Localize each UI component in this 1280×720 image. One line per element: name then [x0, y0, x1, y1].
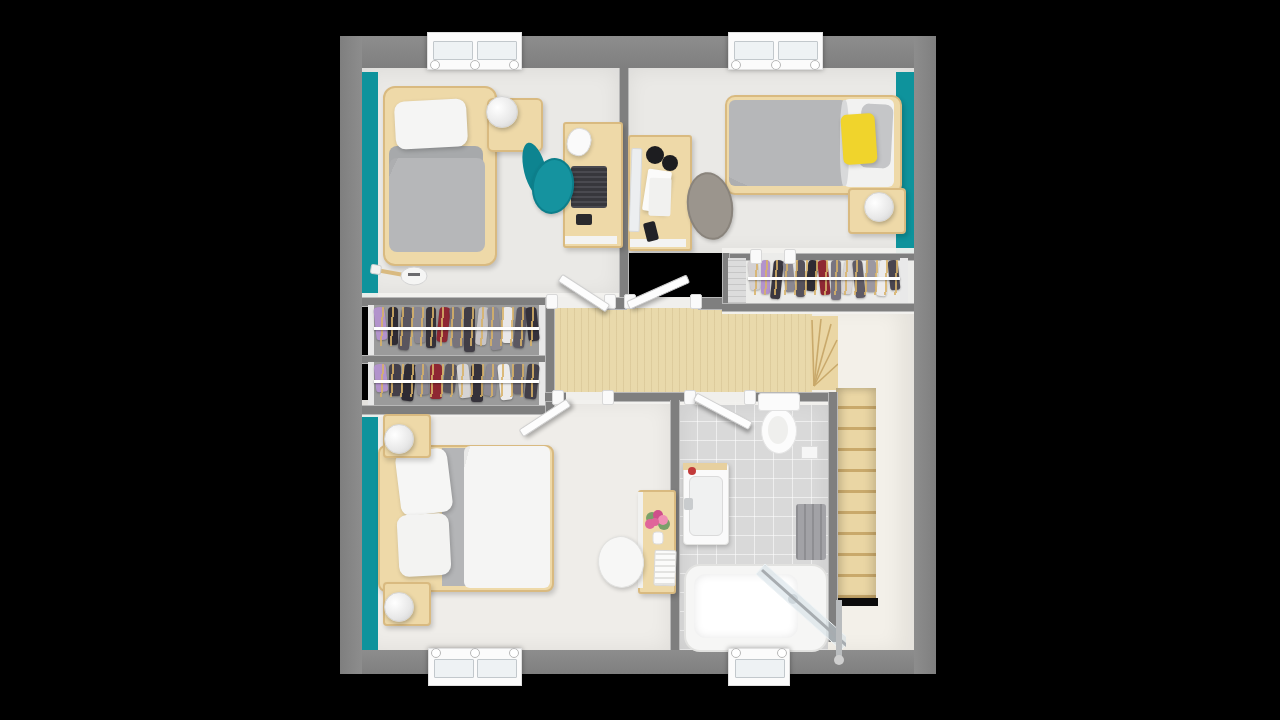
shower-rail-pole: [836, 600, 842, 658]
window-pane: [434, 659, 474, 678]
accent-wall-master: [362, 412, 378, 650]
table-lamp: [384, 424, 414, 454]
walkin-endcap: [900, 258, 908, 303]
clothes-rail: [374, 380, 539, 383]
floor-plan: [340, 36, 936, 674]
headphones: [662, 155, 678, 171]
door-jamb: [784, 249, 796, 264]
table-lamp: [384, 592, 414, 622]
yellow-pillow: [840, 113, 877, 165]
desk-drawer-front: [630, 239, 686, 247]
render-canvas: [0, 0, 1280, 720]
door-jamb: [690, 294, 702, 309]
bed-duvet: [464, 446, 550, 588]
closet-rack: [748, 260, 900, 301]
door-jamb: [744, 390, 756, 405]
wall-outer-left: [340, 36, 362, 674]
speaker-box: [576, 214, 592, 225]
window-knob: [431, 648, 441, 658]
wall-walkin-bottom: [722, 303, 914, 312]
wardrobe-endcap: [539, 305, 545, 355]
table-lamp: [864, 192, 894, 222]
walkin-shelf-stack: [728, 258, 746, 303]
hallway-floor: [553, 308, 812, 392]
window-knob: [731, 60, 741, 70]
clothes-rail: [748, 277, 900, 280]
window-knob: [810, 60, 820, 70]
door-jamb: [546, 294, 558, 309]
window-knob: [509, 60, 519, 70]
shower-glass-screen: [670, 392, 846, 672]
window-pane: [735, 659, 785, 678]
door-jamb: [602, 390, 614, 405]
window-knob: [771, 60, 781, 70]
closet-rack: [374, 307, 539, 353]
laptop: [571, 166, 607, 208]
window-pane: [734, 41, 774, 60]
window-bottom-bathroom: [728, 648, 790, 686]
window-knob: [470, 60, 480, 70]
stairs-winder-steps: [810, 316, 838, 390]
wardrobe-endcap: [539, 362, 545, 405]
window-knob: [777, 648, 787, 658]
window-pane: [433, 41, 473, 60]
window-pane: [477, 659, 517, 678]
window-top-right: [728, 32, 823, 70]
papers: [648, 178, 671, 217]
window-pane: [778, 41, 818, 60]
window-knob: [731, 648, 741, 658]
bed-pillow: [394, 98, 468, 150]
window-top-left: [427, 32, 522, 70]
stairs-winder: [810, 316, 838, 390]
window-knob: [470, 648, 480, 658]
window-knob: [509, 648, 519, 658]
window-pane: [477, 41, 517, 60]
bed-duvet: [729, 100, 847, 186]
desk-drawer-front: [565, 236, 617, 244]
window-bottom-left: [428, 648, 522, 686]
bed-duvet: [389, 158, 485, 252]
window-knob: [430, 60, 440, 70]
table-lamp: [486, 96, 518, 128]
wall-outer-right: [914, 36, 936, 674]
bed-pillow: [396, 513, 451, 578]
clothes-rail: [374, 327, 539, 330]
closet-rack: [374, 364, 539, 403]
door-jamb: [750, 249, 762, 264]
electric-guitar: [370, 258, 432, 288]
